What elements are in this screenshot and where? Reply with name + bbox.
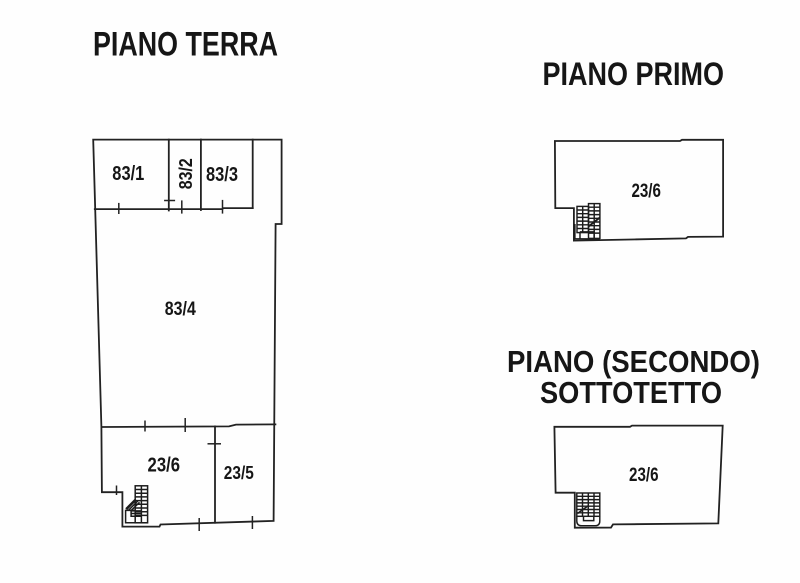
svg-text:83/1: 83/1 <box>112 163 144 185</box>
svg-text:23/6: 23/6 <box>631 180 661 202</box>
svg-text:23/6: 23/6 <box>629 464 659 486</box>
svg-text:83/2: 83/2 <box>175 158 196 189</box>
svg-text:23/6: 23/6 <box>148 454 181 477</box>
svg-text:SOTTOTETTO: SOTTOTETTO <box>540 375 722 410</box>
svg-text:PIANO PRIMO: PIANO PRIMO <box>543 56 725 92</box>
svg-text:23/5: 23/5 <box>224 462 254 483</box>
svg-text:83/3: 83/3 <box>206 164 238 186</box>
svg-text:83/4: 83/4 <box>165 298 196 320</box>
svg-text:PIANO (SECONDO): PIANO (SECONDO) <box>507 344 760 379</box>
svg-text:PIANO TERRA: PIANO TERRA <box>93 26 278 64</box>
